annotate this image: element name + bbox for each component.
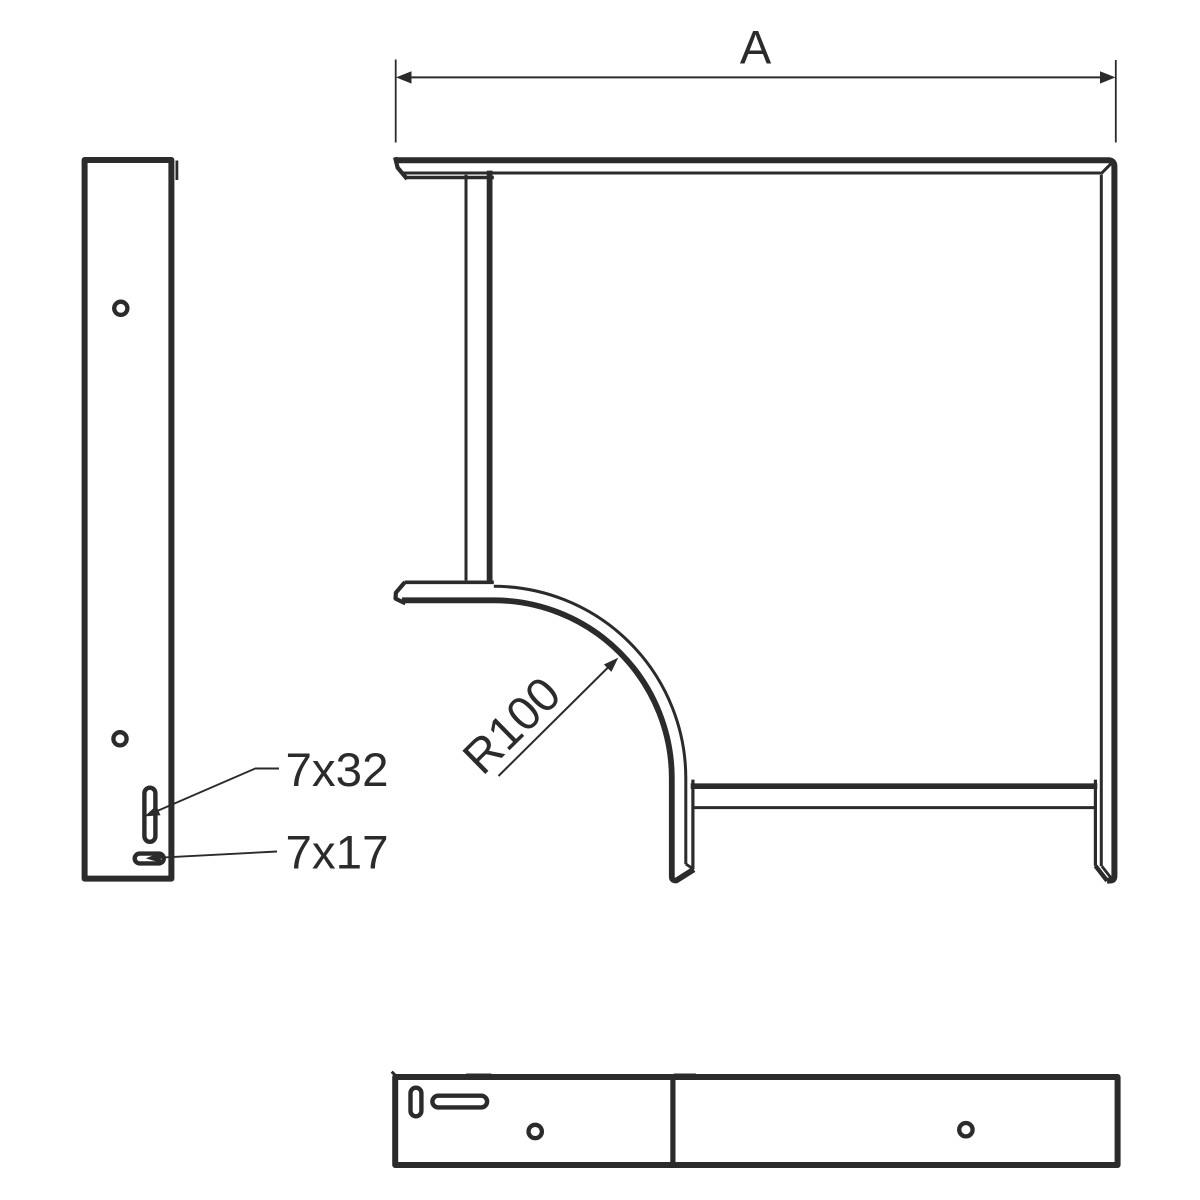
svg-text:7x32: 7x32 xyxy=(286,744,389,797)
svg-text:A: A xyxy=(740,20,772,73)
svg-text:R100: R100 xyxy=(453,667,571,784)
svg-text:7x17: 7x17 xyxy=(286,827,389,880)
